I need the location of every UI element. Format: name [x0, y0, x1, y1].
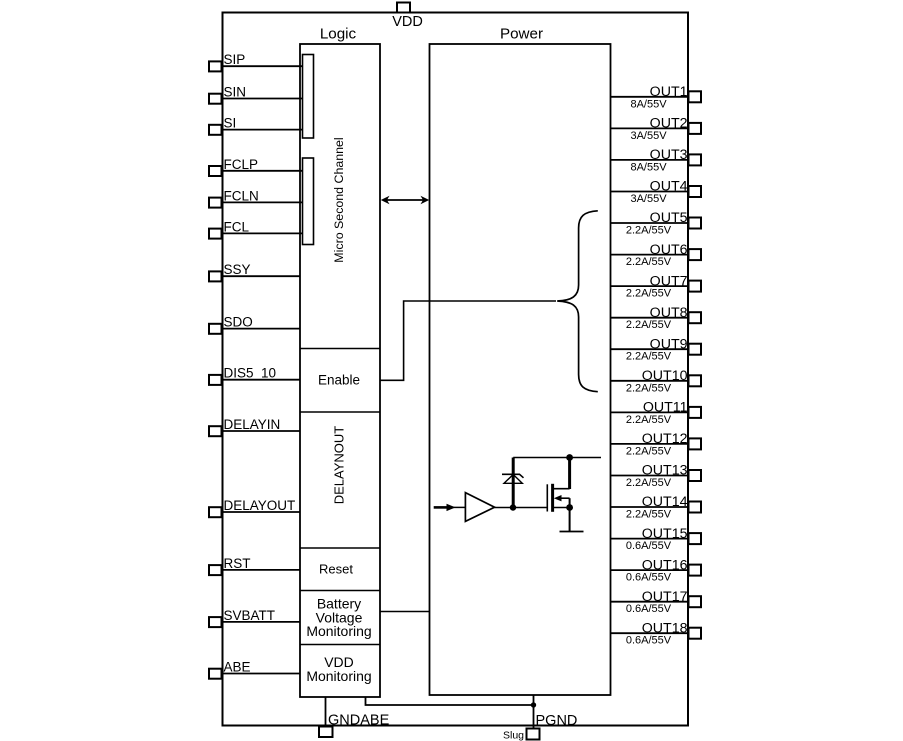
svg-text:2.2A/55V: 2.2A/55V — [626, 256, 672, 268]
svg-text:SDO: SDO — [224, 315, 253, 330]
svg-text:SIN: SIN — [224, 85, 247, 100]
svg-text:FCL: FCL — [224, 219, 250, 234]
svg-text:2.2A/55V: 2.2A/55V — [626, 351, 672, 363]
svg-text:DELAYNOUT: DELAYNOUT — [332, 426, 347, 505]
svg-text:FCLP: FCLP — [224, 157, 259, 172]
svg-text:DELAYOUT: DELAYOUT — [224, 498, 296, 513]
svg-text:DIS5_10: DIS5_10 — [224, 366, 277, 381]
svg-text:Enable: Enable — [318, 373, 360, 388]
svg-text:Power: Power — [500, 26, 543, 43]
svg-text:FCLN: FCLN — [224, 188, 259, 203]
svg-text:Monitoring: Monitoring — [306, 623, 371, 639]
svg-text:Micro Second Channel: Micro Second Channel — [332, 137, 346, 262]
svg-text:DELAYIN: DELAYIN — [224, 417, 281, 432]
svg-text:ABE: ABE — [224, 660, 251, 675]
svg-text:0.6A/55V: 0.6A/55V — [626, 603, 672, 615]
svg-text:SIP: SIP — [224, 52, 246, 67]
svg-text:3A/55V: 3A/55V — [630, 193, 667, 205]
svg-text:2.2A/55V: 2.2A/55V — [626, 509, 672, 521]
svg-text:2.2A/55V: 2.2A/55V — [626, 382, 672, 394]
svg-text:2.2A/55V: 2.2A/55V — [626, 288, 672, 300]
svg-text:Reset: Reset — [319, 562, 353, 577]
svg-text:8A/55V: 8A/55V — [630, 98, 667, 110]
svg-text:0.6A/55V: 0.6A/55V — [626, 572, 672, 584]
svg-text:VDD: VDD — [392, 14, 423, 30]
svg-text:PGND: PGND — [536, 713, 578, 729]
svg-text:3A/55V: 3A/55V — [630, 130, 667, 142]
svg-text:2.2A/55V: 2.2A/55V — [626, 225, 672, 237]
svg-text:0.6A/55V: 0.6A/55V — [626, 635, 672, 647]
svg-text:GNDABE: GNDABE — [328, 713, 390, 729]
svg-text:Monitoring: Monitoring — [306, 668, 371, 684]
svg-text:8A/55V: 8A/55V — [630, 161, 667, 173]
svg-text:0.6A/55V: 0.6A/55V — [626, 540, 672, 552]
svg-text:RST: RST — [224, 556, 251, 571]
svg-text:Slug: Slug — [503, 730, 524, 741]
svg-text:2.2A/55V: 2.2A/55V — [626, 319, 672, 331]
svg-text:2.2A/55V: 2.2A/55V — [626, 445, 672, 457]
svg-text:2.2A/55V: 2.2A/55V — [626, 414, 672, 426]
svg-text:Logic: Logic — [320, 26, 357, 43]
svg-text:SVBATT: SVBATT — [224, 608, 276, 623]
svg-text:2.2A/55V: 2.2A/55V — [626, 477, 672, 489]
svg-text:SSY: SSY — [224, 262, 251, 277]
svg-text:SI: SI — [224, 116, 237, 131]
